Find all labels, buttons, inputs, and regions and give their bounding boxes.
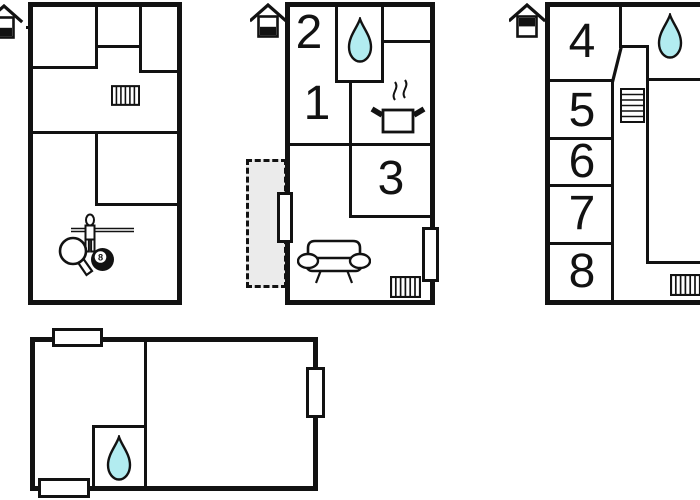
wall bbox=[92, 428, 95, 486]
wall bbox=[335, 7, 338, 83]
radiator-icon bbox=[390, 276, 421, 298]
window-marker bbox=[277, 192, 293, 243]
room-8-label: 8 bbox=[569, 248, 596, 296]
wall bbox=[33, 66, 98, 69]
wall bbox=[646, 261, 700, 264]
angled-wall bbox=[609, 44, 625, 84]
basement-plan: 8 bbox=[28, 2, 182, 305]
floor-plan-canvas: 8 2 1 3 bbox=[0, 0, 700, 500]
wall bbox=[349, 215, 430, 218]
wall bbox=[384, 40, 430, 43]
wall bbox=[646, 78, 700, 81]
ball-number: 8 bbox=[98, 252, 103, 262]
upper-floor-plan: 4 5 6 7 8 bbox=[545, 2, 700, 305]
window-marker bbox=[52, 328, 103, 347]
water-drop-icon bbox=[105, 435, 133, 482]
room-7-label: 7 bbox=[569, 190, 596, 238]
wall bbox=[95, 134, 98, 206]
wall bbox=[139, 7, 142, 73]
water-drop-icon bbox=[346, 17, 374, 64]
water-drop-icon bbox=[656, 13, 684, 60]
ground-floor-plan: 2 1 3 bbox=[285, 2, 435, 305]
wall bbox=[611, 79, 614, 300]
window-marker bbox=[422, 227, 439, 282]
wall bbox=[98, 45, 139, 48]
radiator-icon bbox=[670, 274, 700, 296]
steam-icon bbox=[394, 80, 407, 100]
house-upper-floor-icon bbox=[509, 3, 545, 41]
wall bbox=[92, 425, 147, 428]
wall bbox=[290, 143, 430, 146]
window-marker bbox=[306, 367, 325, 418]
room-5-label: 5 bbox=[569, 87, 596, 135]
window-marker bbox=[38, 478, 90, 498]
wall bbox=[550, 79, 614, 82]
wall bbox=[33, 131, 177, 134]
wall bbox=[95, 7, 98, 69]
house-ground-floor-icon bbox=[250, 3, 286, 41]
cooking-pot-icon bbox=[370, 72, 426, 134]
wall bbox=[349, 83, 352, 146]
room-2-label: 2 bbox=[296, 9, 323, 57]
wall bbox=[349, 146, 352, 218]
sofa-icon bbox=[297, 237, 371, 289]
game-room-icons: 8 bbox=[55, 213, 140, 288]
annex-plan bbox=[30, 337, 318, 491]
room-1-label: 1 bbox=[304, 80, 331, 128]
billiard-8-ball-icon: 8 bbox=[91, 248, 114, 271]
radiator-icon bbox=[111, 84, 140, 107]
room-6-label: 6 bbox=[569, 138, 596, 186]
wall bbox=[619, 7, 622, 48]
wall bbox=[95, 203, 177, 206]
wall bbox=[139, 70, 177, 73]
stairs-icon bbox=[620, 88, 645, 123]
exterior-wall bbox=[30, 337, 318, 491]
room-3-label: 3 bbox=[378, 155, 405, 203]
room-4-label: 4 bbox=[569, 18, 596, 66]
wall bbox=[144, 342, 147, 486]
